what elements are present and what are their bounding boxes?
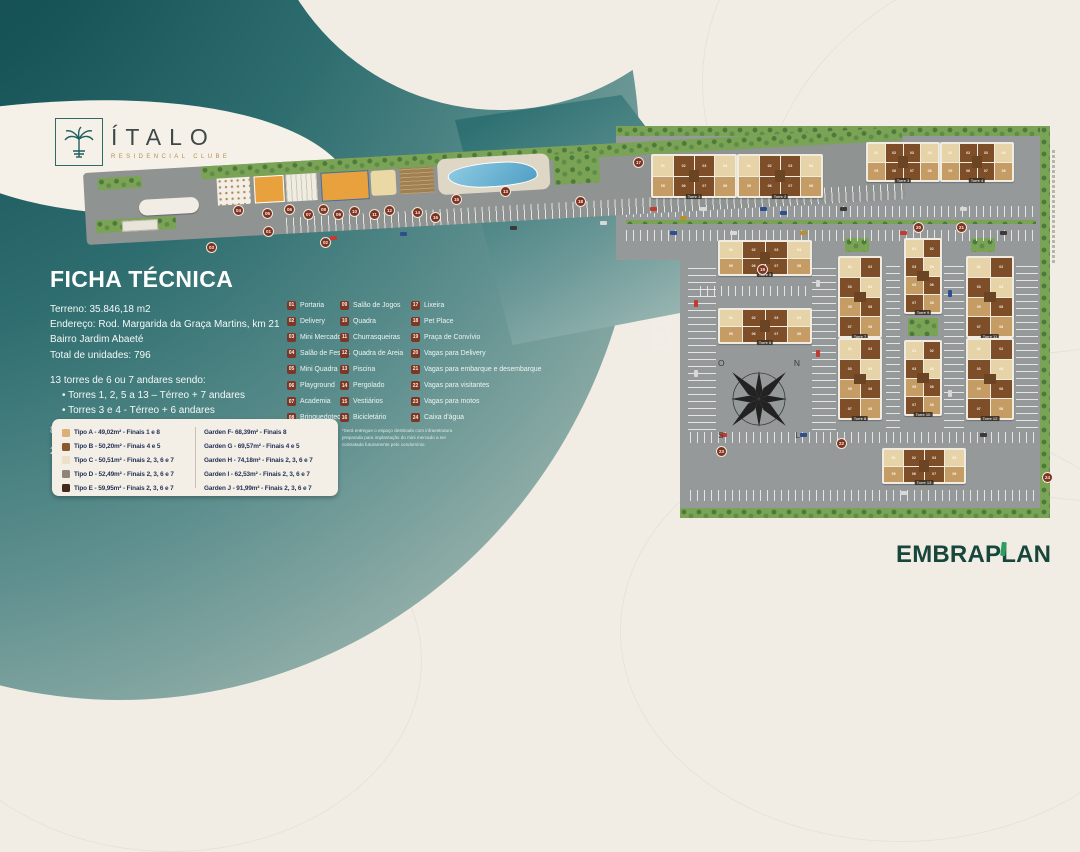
unit-cell: 04 <box>921 144 938 162</box>
tower-label: Torre 4 <box>969 178 985 183</box>
garden-row: Garden J - 91,99m² - Finais 2, 3, 6 e 7 <box>204 481 313 495</box>
legend-label: Vestiários <box>353 398 383 405</box>
compass-label-norte: N <box>794 358 800 368</box>
garden-label: Garden I - 62,53m² - Finais 2, 3, 6 e 7 <box>204 471 310 478</box>
tipo-color-swatch <box>62 484 70 492</box>
unit-cell: 02 <box>861 340 881 359</box>
parking-lane <box>1016 264 1038 428</box>
legend-label: Quadra <box>353 318 376 325</box>
tower-label: Torre 9 <box>915 310 931 315</box>
legend-item: 11Churrasqueiras <box>340 329 403 345</box>
car <box>816 350 820 357</box>
legend-number-badge: 15 <box>340 397 349 406</box>
logo-title: ÍTALO <box>111 124 230 151</box>
tipo-color-swatch <box>62 470 70 478</box>
garden-label: Garden J - 91,99m² - Finais 2, 3, 6 e 7 <box>204 485 312 492</box>
tower-core <box>898 156 908 168</box>
tipo-row: Tipo C - 50,51m² - Finais 2, 3, 6 e 7 <box>62 454 174 468</box>
plan-number-badge: 14 <box>412 207 423 218</box>
legend-item: 16Bicicletário <box>340 410 403 426</box>
parking-lane <box>886 264 900 428</box>
green-area <box>97 176 142 190</box>
tower-building: 0102030405060708Torre 11 <box>966 256 1014 338</box>
car <box>948 290 952 297</box>
green-area <box>1040 126 1050 518</box>
wood-deck <box>399 166 434 194</box>
tower-label: Torre 6 <box>757 340 773 345</box>
tower-building: 0102030405060708Torre 13 <box>882 448 966 484</box>
unit-cell: 01 <box>884 450 903 466</box>
tower-building: 0102030405060708Torre 7 <box>838 256 882 338</box>
tower-core <box>917 271 929 281</box>
legend-label: Vagas para Delivery <box>424 350 486 357</box>
legend-number-badge: 07 <box>287 397 296 406</box>
car <box>694 370 698 377</box>
legend-number-badge: 02 <box>287 317 296 326</box>
unit-cell: 05 <box>942 163 959 181</box>
tower-core <box>854 292 866 302</box>
unit-cell: 02 <box>991 340 1013 359</box>
unit-cell: 01 <box>720 310 742 326</box>
legend-label: Pergolado <box>353 382 384 389</box>
green-area <box>680 508 1050 518</box>
tipo-row: Tipo B - 50,20m² - Finais 4 e 5 <box>62 440 174 454</box>
plan-number-badge: 01 <box>263 226 274 237</box>
tower-label: Torre 2 <box>772 194 788 199</box>
legend-item: 19Praça de Convívio <box>411 329 541 345</box>
unit-cell: 08 <box>995 163 1012 181</box>
tower-core <box>854 374 866 384</box>
logo-subtitle: RESIDENCIAL CLUBE <box>111 154 230 160</box>
tipo-color-swatch <box>62 443 70 451</box>
garden-label: Garden G - 69,57m² - Finais 4 e 5 <box>204 443 299 450</box>
unit-cell: 01 <box>653 156 673 176</box>
plan-number-badge: 03 <box>206 242 217 253</box>
plan-number-badge: 16 <box>430 212 441 223</box>
legend-label: Vagas para motos <box>424 398 479 405</box>
tower-core <box>775 170 785 182</box>
legend-number-badge: 01 <box>287 301 296 310</box>
legend-item: 23Vagas para motos <box>411 394 541 410</box>
unit-cell: 01 <box>906 342 923 359</box>
unit-cell: 04 <box>995 144 1012 162</box>
legend-item: 22Vagas para visitantes <box>411 377 541 393</box>
tower-core <box>919 460 929 472</box>
tipo-row: Tipo E - 59,95m² - Finais 2, 3, 6 e 7 <box>62 481 174 495</box>
plan-number-badge: 15 <box>451 194 462 205</box>
site-plan-poster: { "branding": { "title": "ÍTALO", "subti… <box>0 0 1080 607</box>
car <box>980 433 987 437</box>
legend-number-badge: 10 <box>340 317 349 326</box>
tipo-color-swatch <box>62 429 70 437</box>
parking-lane <box>626 230 1036 241</box>
unit-cell: 04 <box>788 310 810 326</box>
italo-logo: ÍTALO RESIDENCIAL CLUBE <box>55 118 230 166</box>
tower-label: Torre 3 <box>895 178 911 183</box>
unit-cell: 01 <box>840 340 860 359</box>
legend-label: Mini Quadra <box>300 366 338 373</box>
tower-core <box>917 373 929 383</box>
plan-number-badge: 08 <box>318 204 329 215</box>
legend-item: 13Piscina <box>340 361 403 377</box>
legend-number-badge: 22 <box>411 381 420 390</box>
compass-label-sul: S <box>718 430 724 440</box>
car <box>694 300 698 307</box>
plan-number-badge: 10 <box>349 206 360 217</box>
ficha-line: Total de unidades: 796 <box>50 348 312 363</box>
palm-tree-icon <box>55 118 103 166</box>
legend-item: 15Vestiários <box>340 394 403 410</box>
tower-label: Torre 13 <box>915 480 934 485</box>
legend-number-badge: 06 <box>287 381 296 390</box>
unit-cell: 05 <box>720 327 742 343</box>
legend-number-badge: 17 <box>411 301 420 310</box>
legend-label: Piscina <box>353 366 375 373</box>
legend-label: Vagas para visitantes <box>424 382 489 389</box>
unit-cell: 08 <box>788 327 810 343</box>
unit-cell: 04 <box>801 156 821 176</box>
legend-column-3: 17Lixeira18Pet Place19Praça de Convívio2… <box>411 297 541 426</box>
legend-number-badge: 05 <box>287 365 296 374</box>
parking-lane <box>690 490 1036 501</box>
garden-row: Garden G - 69,57m² - Finais 4 e 5 <box>204 440 313 454</box>
car <box>650 207 657 211</box>
legend-column-2: 09Salão de Jogos10Quadra11Churrasqueiras… <box>340 297 403 426</box>
legend-number-badge: 03 <box>287 333 296 342</box>
unit-cell: 01 <box>868 144 885 162</box>
green-area <box>553 152 601 185</box>
panel-divider <box>195 427 196 488</box>
tipos-column: Tipo A - 49,02m² - Finais 1 e 8Tipo B - … <box>62 426 174 495</box>
tower-core <box>984 374 996 384</box>
legend-number-badge: 14 <box>340 381 349 390</box>
tower-building: 0102030405060708Torre 10 <box>904 340 942 416</box>
tower-label: Torre 10 <box>914 412 933 417</box>
plan-number-badge: 17 <box>633 157 644 168</box>
car <box>900 231 907 235</box>
plan-number-badge: 07 <box>303 209 314 220</box>
car <box>948 390 952 397</box>
plan-number-badge: 06 <box>284 204 295 215</box>
legend-item: 17Lixeira <box>411 297 541 313</box>
unit-cell: 01 <box>906 240 923 257</box>
garden-label: Garden F- 68,39m² - Finais 8 <box>204 429 286 436</box>
legend-number-badge: 11 <box>340 333 349 342</box>
unit-cell: 08 <box>921 163 938 181</box>
tower-core <box>689 170 699 182</box>
legend-item: 24Caixa d'água <box>411 410 541 426</box>
unit-cell: 01 <box>968 340 990 359</box>
plan-number-badge: 11 <box>369 209 380 220</box>
legend-item: 10Quadra <box>340 313 403 329</box>
legend-number-badge: 12 <box>340 349 349 358</box>
unit-cell: 02 <box>924 240 941 257</box>
plan-number-badge: 19 <box>757 264 768 275</box>
car <box>330 236 337 240</box>
ficha-title: FICHA TÉCNICA <box>50 266 312 293</box>
ficha-bullet: • Torres 3 e 4 - Térreo + 6 andares <box>50 403 312 418</box>
legend-label: Delivery <box>300 318 325 325</box>
tipo-label: Tipo B - 50,20m² - Finais 4 e 5 <box>74 443 160 450</box>
tower-building: 0102030405060708Torre 4 <box>940 142 1014 182</box>
unit-cell: 04 <box>945 450 964 466</box>
ficha-line: Bairro Jardim Abaeté <box>50 332 312 347</box>
garden-row: Garden H - 74,18m² - Finais 2, 3, 6 e 7 <box>204 454 313 468</box>
green-area <box>626 220 1036 224</box>
legend-label: Churrasqueiras <box>353 334 400 341</box>
green-area <box>908 318 938 336</box>
tower-building: 0102030405060708Torre 3 <box>866 142 940 182</box>
tower-core <box>760 252 770 264</box>
unit-cell: 04 <box>715 156 735 176</box>
legend-label: Bicicletário <box>353 414 386 421</box>
side-fine-print <box>1052 150 1055 265</box>
basketball-court <box>320 170 370 202</box>
unit-cell: 01 <box>968 258 990 277</box>
garden-label: Garden H - 74,18m² - Finais 2, 3, 6 e 7 <box>204 457 313 464</box>
legend-number-badge: 18 <box>411 317 420 326</box>
tower-label: Torre 1 <box>686 194 702 199</box>
parking-lane <box>812 262 836 430</box>
car <box>780 211 787 215</box>
tower-label: Torre 12 <box>981 416 1000 421</box>
garden-row: Garden I - 62,53m² - Finais 2, 3, 6 e 7 <box>204 467 313 481</box>
legend-item: 09Salão de Jogos <box>340 297 403 313</box>
mini-court <box>253 175 284 204</box>
plan-number-badge: 09 <box>333 209 344 220</box>
compass-rose: O N S L <box>716 356 802 442</box>
car <box>1000 231 1007 235</box>
small-building <box>122 219 159 232</box>
ficha-bullet: • Torres 1, 2, 5 a 13 – Térreo + 7 andar… <box>50 388 312 403</box>
unit-cell: 05 <box>739 177 759 197</box>
parking-lane <box>700 286 812 296</box>
pergola-area <box>285 173 317 202</box>
tower-label: Torre 8 <box>852 416 868 421</box>
legend-number-badge: 19 <box>411 333 420 342</box>
unit-cell: 01 <box>942 144 959 162</box>
car <box>800 231 807 235</box>
unit-cell: 01 <box>720 242 742 258</box>
ficha-line: Terreno: 35.846,18 m2 <box>50 302 312 317</box>
tipo-label: Tipo E - 59,95m² - Finais 2, 3, 6 e 7 <box>74 485 174 492</box>
legend-label: Pet Place <box>424 318 454 325</box>
tipo-label: Tipo D - 52,49m² - Finais 2, 3, 6 e 7 <box>74 471 174 478</box>
ficha-torres-intro: 13 torres de 6 ou 7 andares sendo: <box>50 373 312 388</box>
legend-item: 18Pet Place <box>411 313 541 329</box>
car <box>700 207 707 211</box>
gatehouse <box>139 197 200 216</box>
ficha-lines: Terreno: 35.846,18 m2Endereço: Rod. Marg… <box>50 302 312 363</box>
legend-number-badge: 24 <box>411 413 420 422</box>
tipo-label: Tipo A - 49,02m² - Finais 1 e 8 <box>74 429 160 436</box>
legend-item: 20Vagas para Delivery <box>411 345 541 361</box>
unit-cell: 02 <box>861 258 881 277</box>
unit-cell: 05 <box>653 177 673 197</box>
legend-label: Caixa d'água <box>424 414 464 421</box>
plan-number-badge: 22 <box>836 438 847 449</box>
car <box>400 232 407 236</box>
legend-number-badge: 09 <box>340 301 349 310</box>
legend-number-badge: 13 <box>340 365 349 374</box>
legend-label: Salão de Jogos <box>353 302 401 309</box>
plan-number-badge: 02 <box>320 237 331 248</box>
legend-label: Praça de Convívio <box>424 334 480 341</box>
tower-core <box>760 320 770 332</box>
legend-number-badge: 04 <box>287 349 296 358</box>
plan-number-badge: 04 <box>233 205 244 216</box>
garden-row: Garden F- 68,39m² - Finais 8 <box>204 426 313 440</box>
legend-label: Playground <box>300 382 335 389</box>
legend-item: 14Pergolado <box>340 377 403 393</box>
plan-number-badge: 18 <box>575 196 586 207</box>
legend-number-badge: 16 <box>340 413 349 422</box>
legend-label: Lixeira <box>424 302 444 309</box>
unit-cell: 08 <box>945 467 964 483</box>
party-hall-area <box>217 177 251 206</box>
legend-label: Vagas para embarque e desembarque <box>424 366 541 373</box>
compass-star-icon <box>716 356 802 442</box>
typologies-panel: Tipo A - 49,02m² - Finais 1 e 8Tipo B - … <box>52 419 338 496</box>
unit-cell: 08 <box>788 259 810 275</box>
tipo-color-swatch <box>62 456 70 464</box>
car <box>510 226 517 230</box>
sand-court <box>370 170 396 196</box>
plan-number-badge: 24 <box>1042 472 1053 483</box>
tower-building: 0102030405060708Torre 2 <box>737 154 823 198</box>
mini-mercado-note: *Será entregue o espaço destinado com in… <box>342 428 454 448</box>
car <box>816 280 820 287</box>
car <box>670 231 677 235</box>
tower-building: 0102030405060708Torre 12 <box>966 338 1014 420</box>
embraplan-logo: EMBRAPLAN <box>896 541 1051 569</box>
plan-number-badge: 21 <box>956 222 967 233</box>
ficha-bullets: • Torres 1, 2, 5 a 13 – Térreo + 7 andar… <box>50 388 312 418</box>
tower-building: 0102030405060708Torre 1 <box>651 154 737 198</box>
tipo-label: Tipo C - 50,51m² - Finais 2, 3, 6 e 7 <box>74 457 174 464</box>
legend-label: Portaria <box>300 302 324 309</box>
car <box>840 207 847 211</box>
ficha-line: Endereço: Rod. Margarida da Graça Martin… <box>50 317 312 332</box>
tipo-row: Tipo A - 49,02m² - Finais 1 e 8 <box>62 426 174 440</box>
unit-cell: 05 <box>720 259 742 275</box>
unit-cell: 08 <box>715 177 735 197</box>
unit-cell: 02 <box>991 258 1013 277</box>
car <box>960 207 967 211</box>
tower-core <box>972 156 982 168</box>
unit-cell: 01 <box>739 156 759 176</box>
tower-building: 0102030405060708Torre 9 <box>904 238 942 314</box>
car <box>900 491 907 495</box>
legend-number-badge: 23 <box>411 397 420 406</box>
unit-cell: 04 <box>788 242 810 258</box>
unit-cell: 02 <box>924 342 941 359</box>
legend-label: Mini Mercado* <box>300 334 344 341</box>
unit-cell: 08 <box>801 177 821 197</box>
tower-building: 0102030405060708Torre 8 <box>838 338 882 420</box>
legend-number-badge: 21 <box>411 365 420 374</box>
legend-number-badge: 20 <box>411 349 420 358</box>
tower-core <box>984 292 996 302</box>
car <box>600 221 607 225</box>
gardens-column: Garden F- 68,39m² - Finais 8Garden G - 6… <box>204 426 313 495</box>
legend-item: 21Vagas para embarque e desembarque <box>411 361 541 377</box>
car <box>730 231 737 235</box>
plan-number-badge: 13 <box>500 186 511 197</box>
plan-number-badge: 05 <box>262 208 273 219</box>
car <box>680 216 687 220</box>
tower-building: 0102030405060708Torre 6 <box>718 308 812 344</box>
legend-label: Quadra de Areia <box>353 350 403 357</box>
legend-item: 12Quadra de Areia <box>340 345 403 361</box>
plan-number-badge: 12 <box>384 205 395 216</box>
compass-label-oeste: O <box>718 358 725 368</box>
unit-cell: 05 <box>884 467 903 483</box>
plan-number-badge: 23 <box>716 446 727 457</box>
unit-cell: 05 <box>868 163 885 181</box>
legend-label: Academia <box>300 398 331 405</box>
tipo-row: Tipo D - 52,49m² - Finais 2, 3, 6 e 7 <box>62 467 174 481</box>
unit-cell: 01 <box>840 258 860 277</box>
plan-number-badge: 20 <box>913 222 924 233</box>
parking-lane <box>944 264 964 428</box>
car <box>760 207 767 211</box>
compass-label-leste: L <box>795 430 800 440</box>
